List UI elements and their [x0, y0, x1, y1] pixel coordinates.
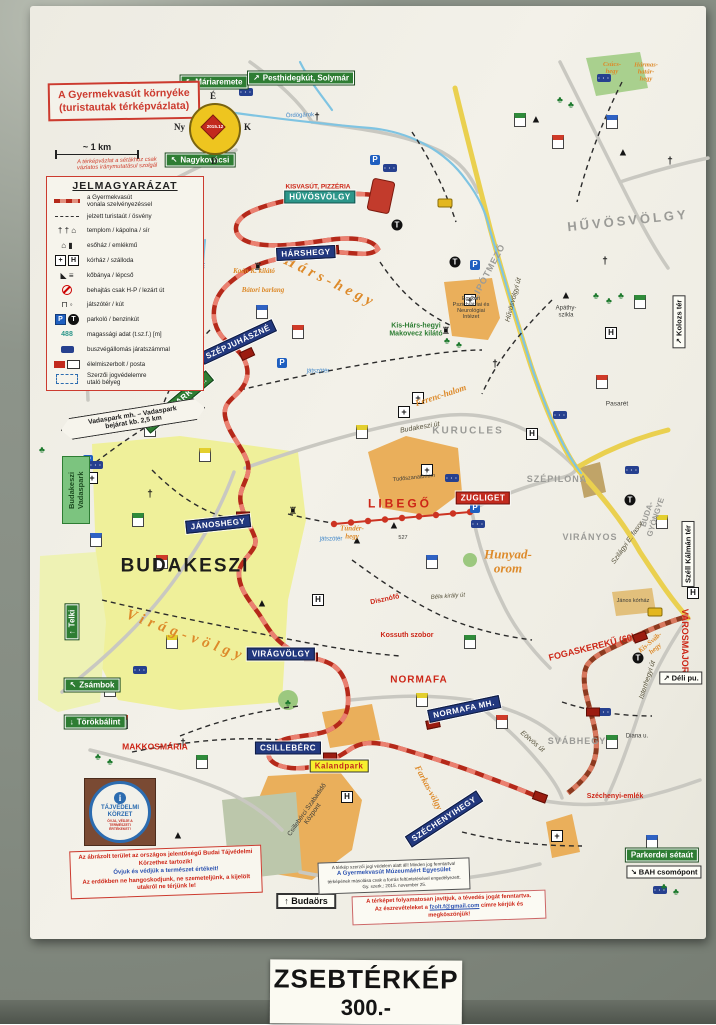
trail-marker-icon [132, 513, 144, 527]
church-icon: † [602, 257, 608, 267]
map-sheet: HŰVÖSVÖLGYHÁRSHEGYSZÉPJUHÁSZNÉVADASPARK … [0, 0, 716, 1024]
trail-marker-icon [426, 555, 438, 569]
map-label-huvosvolgy: HŰVÖSVÖLGY [567, 208, 690, 235]
legend-icon-quarry-icon: ◣ ≡ [51, 271, 83, 280]
direction-sign-zsambok: ↖Zsámbok [65, 679, 120, 692]
map-label-ferenc-halom: Ferenc-halom [414, 383, 467, 409]
tree-icon: ♣ [618, 292, 624, 301]
tree-icon: ♣ [673, 888, 679, 897]
feedback-line2-pre: Az észrevételeket a [375, 904, 430, 912]
tree-icon: ♣ [568, 101, 574, 110]
legend-icon-elevation-icon: 488 [51, 331, 83, 338]
map-label-pasaret: Pasarét [606, 400, 628, 407]
map-label-farkas-volgy: Farkas-völgy [412, 764, 444, 812]
legend-item-playground: ⊓ ◦játszótér / kút [51, 298, 199, 313]
station-building-icon [532, 790, 548, 803]
map-label-lipotmezo: LIPÓTMEZŐ [470, 243, 508, 302]
map-label-szepilona: SZÉPILONA [527, 475, 588, 485]
station-sign-huvosvolgy: HŰVÖSVÖLGY [284, 191, 355, 204]
church-icon: † [314, 113, 320, 123]
peak-icon: ▲ [561, 291, 572, 302]
feedback-email: fzolt.f@gmail.com [429, 903, 479, 911]
map-label-virag-volgy: Virág-völgy [124, 607, 249, 666]
legend-item-hospital: +Hkórház / szálloda [51, 253, 199, 268]
info-icon: i [114, 792, 126, 804]
station-building-icon [239, 347, 255, 361]
church-icon: † [492, 360, 498, 370]
map-label-harmas-hatar-hegy: Hármas- határ- hegy [634, 61, 658, 82]
compass-west: Ny [174, 122, 185, 132]
station-sign-harshegy: HÁRSHEGY [276, 245, 336, 261]
legend-item-restricted: behajtás csak H-P / lezárt út [51, 283, 199, 298]
direction-sign-pesthidegkut-solymar: ↗Pesthidegkút, Solymár [248, 72, 354, 85]
legend-label: élelmiszerbolt / posta [87, 361, 145, 368]
legend-label: templom / kápolna / sír [87, 227, 150, 234]
map-label-szechenyi-emlek: Széchenyi-emlék [587, 793, 643, 801]
legend-item-parking: PTparkoló / benzinkút [51, 312, 199, 327]
map-label-szilagyi-e-fasor: Szilágyi E. fasor [610, 520, 645, 566]
map-label-kaan-k-kilato: Kaán K. kilátó [233, 268, 275, 276]
map-label-janos-korhaz: János kórház [617, 598, 650, 604]
map-label-varosmajor: VÁROSMAJOR [679, 609, 689, 674]
legend-icon-trail-icon [51, 216, 83, 217]
trail-marker-icon [552, 135, 564, 149]
direction-sign-kolozs-ter: ↗ Kolozs tér [673, 296, 686, 349]
station-sign-normafa-mh: NORMAFA MH. [427, 695, 501, 723]
tree-icon: ♣ [444, 337, 450, 346]
fuel-icon: T [450, 257, 461, 268]
map-label-hars-hegy: Hárs-hegy [281, 252, 379, 311]
arrow-icon: ↖ [70, 681, 77, 690]
station-sign-viragvolgy: VIRÁGVÖLGY [247, 648, 315, 661]
station-sign-szepjuhaszne: SZÉPJUHÁSZNÉ [199, 319, 277, 365]
hotel-icon: H [526, 428, 538, 440]
hotel-icon: H [605, 327, 617, 339]
tram-icon [438, 199, 453, 208]
compass-east: K [244, 122, 251, 132]
hotel-icon: H [341, 791, 353, 803]
direction-sign-bah-csomopont: ↘ BAH csomópont [626, 866, 701, 879]
direction-sign-torokbalint: ↓Törökbálint [65, 716, 126, 729]
legend-label: a Gyermekvasút vonala szelvényezéssel [87, 194, 152, 208]
map-label-budakeszi: BUDAKESZI [121, 557, 250, 578]
map-label-istenhegyi-ut: Istenhegyi út [638, 660, 658, 700]
legend-label: behajtás csak H-P / lezárt út [87, 287, 164, 294]
map-label-fogaskereku-60: FOGASKEREKŰ (60) [548, 632, 636, 663]
map-label-normafa: NORMAFA [390, 675, 448, 686]
fuel-icon: T [625, 495, 636, 506]
map-label-bela-kiraly-ut: Béla király út [431, 593, 466, 602]
photo-background: HŰVÖSVÖLGYHÁRSHEGYSZÉPJUHÁSZNÉVADASPARK … [0, 0, 716, 1024]
legend-label: magassági adat (t.sz.f.) [m] [87, 331, 162, 338]
tree-icon: ♣ [107, 758, 113, 767]
direction-sign-deli-pu: ↗ Déli pu. [659, 672, 702, 685]
compass-south: D [211, 156, 218, 166]
map-label-egykori-pszichiatriai-es-neurologiai-intezet: Egykori Pszichiátriai és Neurológiai Int… [453, 296, 490, 320]
trail-marker-icon [416, 693, 428, 707]
legend-item-rail: a Gyermekvasút vonala szelvényezéssel [51, 194, 199, 209]
legend-icon-bus-icon [51, 346, 83, 353]
map-label-csilleberci-szabadido-kozpont: Csillebérci Szabadidő Központ [286, 782, 334, 841]
station-sign-kalandpark: Kalandpark [310, 760, 369, 773]
trail-marker-icon [496, 715, 508, 729]
legend-icon-playground-icon: ⊓ ◦ [51, 300, 83, 309]
legend-item-stamp: Szerzői jogvédelemre utaló bélyeg [51, 372, 199, 387]
map-label-kisvasut-pizzeria: KISVASÚT, PIZZÉRIA [286, 183, 351, 190]
compass-rose: 2015.12 É K D Ny [189, 103, 241, 155]
map-label-libego: LIBEGŐ [368, 497, 432, 510]
map-label-527: 527 [398, 535, 407, 541]
map-label-kis-hars-hegyi-makovecz-kilato: Kis-Hárs-hegyi Makovecz kilátó [389, 322, 442, 337]
legend-icon-restricted-icon [51, 285, 83, 295]
legend-label: esőház / emlékmű [87, 242, 137, 249]
hotel-icon: H [687, 587, 699, 599]
protected-area-notice: Az ábrázolt terület az országos jelentős… [69, 845, 263, 899]
trail-marker-icon [634, 295, 646, 309]
tree-icon: ♣ [95, 753, 101, 762]
station-building-icon [586, 708, 600, 717]
peak-icon: ▲ [173, 831, 184, 842]
peak-icon: ▲ [618, 148, 629, 159]
legend-icon-church-icon: † † ⌂ [51, 226, 83, 235]
map-label-ordogarok: Ördögárok [286, 112, 315, 120]
legend-item-shelter: ⌂ ▮esőház / emlékmű [51, 238, 199, 253]
map-label-huvosvolgyi-ut: Hűvösvölgyi út [504, 277, 523, 323]
map-label-tudoszanatorium: Tüdőszanatórium [393, 473, 436, 483]
legend-label: kórház / szálloda [87, 257, 133, 264]
arrow-icon: ↗ [253, 74, 260, 83]
scale-bar: ~ 1 km [55, 142, 139, 155]
legend-icon-rail-icon [51, 199, 83, 203]
map-label-svabhegy: SVÁBHEGY [548, 737, 607, 747]
trail-marker-icon [514, 113, 526, 127]
tree-icon: ♣ [285, 699, 291, 708]
price-label: ZSEBTÉRKÉP 300.- [270, 959, 462, 1024]
trail-marker-icon [196, 755, 208, 769]
direction-sign-szell-kalman-ter: Széll Kálmán tér [682, 521, 695, 587]
trail-marker-icon [90, 533, 102, 547]
map-label-jatszoter: játszótér [307, 369, 330, 376]
church-icon: † [667, 157, 673, 167]
parking-icon: P [277, 358, 287, 368]
map-label-tunder-hegy: Tündér- hegy [340, 525, 364, 540]
legend-icon-shop-icon [51, 360, 83, 369]
fuel-icon: T [392, 220, 403, 231]
bus-icon [133, 666, 147, 674]
tower-icon: ♜ [289, 507, 298, 517]
tree-icon: ♣ [39, 446, 45, 455]
bus-icon [553, 411, 567, 419]
legend-label: buszvégállomás járatszámmal [87, 346, 170, 353]
legend-icon-parking-icon: PT [51, 314, 83, 325]
tree-icon: ♣ [661, 883, 667, 892]
map-label-apathy-szikla: Apáthy- szikla [556, 305, 577, 318]
map-label-kossuth-szobor: Kossuth szobor [381, 632, 434, 640]
legend-list: a Gyermekvasút vonala szelvényezésseljel… [51, 194, 199, 386]
hotel-icon: H [312, 594, 324, 606]
bus-icon [89, 461, 103, 469]
parking-icon: P [470, 503, 480, 513]
legend-title: JELMAGYARÁZAT [51, 180, 199, 192]
station-sign-zugliget: ZUGLIGET [456, 492, 510, 505]
map-label-diana-u: Diana u. [626, 734, 648, 741]
map-title-box: A Gyermekvasút környéke (turistautak tér… [48, 81, 201, 122]
hospital-icon: + [398, 406, 410, 418]
compass-date: 2015.12 [191, 124, 239, 129]
legend-label: kőbánya / lépcső [87, 272, 133, 279]
price-amount: 300.- [270, 994, 462, 1021]
scale-label: ~ 1 km [55, 142, 139, 152]
map-label-eotvos-ut: Eötvös út [518, 730, 545, 755]
bus-icon [625, 466, 639, 474]
map-label-csucs-hegy: Csúcs- hegy [603, 61, 621, 75]
trail-marker-icon [646, 835, 658, 849]
peak-icon: ▲ [257, 599, 268, 610]
trail-marker-icon [606, 115, 618, 129]
arrow-icon: ↓ [70, 718, 74, 727]
legend-icon-hospital-icon: +H [51, 255, 83, 266]
sign-budakeszi-vadaspark: Budakeszi Vadaspark [62, 456, 90, 524]
bus-icon [239, 88, 253, 96]
bus-icon [597, 74, 611, 82]
trail-marker-icon [292, 325, 304, 339]
copyright-box: A térkép szerzői jogi védelem alatt áll!… [317, 857, 470, 894]
bus-icon [471, 520, 485, 528]
legend-item-shop: élelmiszerbolt / posta [51, 357, 199, 372]
tram-icon [648, 608, 663, 617]
tree-icon: ♣ [557, 96, 563, 105]
legend-icon-stamp-icon [51, 374, 83, 384]
map-label-kurucles: KURUCLES [432, 426, 504, 437]
map-title-line2: (turistautak térképvázlata) [53, 100, 195, 116]
legend-item-quarry: ◣ ≡kőbánya / lépcső [51, 268, 199, 283]
price-title: ZSEBTÉRKÉP [270, 963, 462, 995]
compass-north: É [210, 91, 216, 101]
station-sign-csilleberc: CSILLEBÉRC [255, 742, 321, 755]
church-icon: † [147, 490, 153, 500]
tajvedelmi-sign-face: i TÁJVÉDELMI KÖRZET ÓVJA, VÉDJE A TERMÉS… [89, 781, 151, 843]
parking-icon: P [470, 260, 480, 270]
tajvedelmi-title: TÁJVÉDELMI KÖRZET [101, 805, 139, 819]
scale-line [55, 154, 139, 155]
trail-marker-icon [256, 305, 268, 319]
trail-marker-icon [356, 425, 368, 439]
parking-icon: P [370, 155, 380, 165]
map-label-batori-barlang: Bátori barlang [242, 287, 285, 295]
legend-item-elevation: 488magassági adat (t.sz.f.) [m] [51, 327, 199, 342]
trail-marker-icon [596, 375, 608, 389]
peak-icon: ▲ [389, 521, 400, 532]
map-label-makkosmaria: MAKKOSMÁRIA [122, 742, 188, 751]
legend-label: Szerzői jogvédelemre utaló bélyeg [87, 372, 147, 386]
legend-icon-shelter-icon: ⌂ ▮ [51, 241, 83, 250]
direction-sign-telki: ↑Telki [66, 605, 79, 640]
legend-item-church: † † ⌂templom / kápolna / sír [51, 224, 199, 239]
map-label-hunyad-orom: Hunyad- orom [484, 548, 532, 577]
tree-icon: ♣ [606, 297, 612, 306]
hospital-icon: + [551, 830, 563, 842]
tajvedelmi-sub: ÓVJA, VÉDJE A TERMÉSZETI ÉRTÉKEKET! [107, 819, 133, 831]
tajvedelmi-sign: i TÁJVÉDELMI KÖRZET ÓVJA, VÉDJE A TERMÉS… [84, 778, 156, 846]
legend-label: játszótér / kút [87, 301, 124, 308]
tree-icon: ♣ [456, 341, 462, 350]
legend-label: jelzett turistaút / ösvény [87, 213, 152, 220]
trail-marker-icon [199, 448, 211, 462]
bus-icon [445, 474, 459, 482]
peak-icon: ▲ [531, 115, 542, 126]
arrow-icon: ↑ [68, 630, 77, 634]
tree-icon: ♣ [593, 292, 599, 301]
direction-sign-parkerdei-setaut: Parkerdei sétaút [626, 849, 698, 862]
legend-item-bus: buszvégállomás járatszámmal [51, 342, 199, 357]
station-sign-szechenyihegy: SZÉCHENYIHEGY [405, 790, 483, 847]
station-sign-janoshegy: JÁNOSHEGY [185, 514, 251, 534]
legend-item-trail: jelzett turistaút / ösvény [51, 209, 199, 224]
legend-box: JELMAGYARÁZAT a Gyermekvasút vonala szel… [46, 176, 204, 391]
trail-marker-icon [606, 735, 618, 749]
direction-sign-budaors: ↑ Budaörs [276, 893, 336, 909]
map-label-viranyos: VIRÁNYOS [562, 533, 617, 543]
bus-icon [383, 164, 397, 172]
map-label-disznofo: Disznófő [370, 593, 401, 607]
legend-label: parkoló / benzinkút [87, 316, 139, 323]
trail-marker-icon [464, 635, 476, 649]
map-label-jatszoter: játszótér [320, 537, 343, 544]
